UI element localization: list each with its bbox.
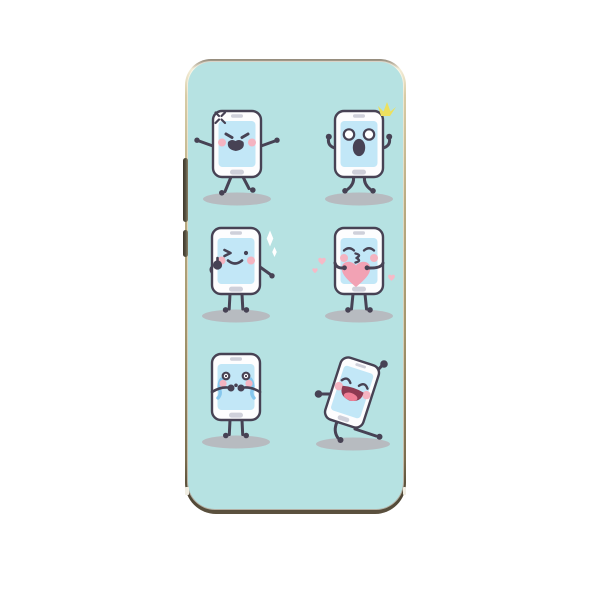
kiss-mouth bbox=[356, 253, 360, 262]
antenna-line-left bbox=[185, 487, 189, 495]
case-power-button bbox=[183, 230, 188, 257]
flash-sparkle-icon bbox=[378, 102, 396, 116]
legs bbox=[348, 177, 371, 190]
speaker-slit bbox=[231, 114, 243, 117]
case-volume-button bbox=[183, 158, 188, 222]
speaker-slit bbox=[353, 114, 365, 117]
antenna-line-right bbox=[403, 487, 407, 495]
ground-shadow bbox=[325, 309, 393, 322]
dot-eye bbox=[244, 250, 248, 254]
legs bbox=[229, 420, 242, 435]
phone-character-kiss bbox=[297, 210, 403, 334]
phone-case bbox=[185, 59, 406, 514]
home-button bbox=[229, 412, 243, 417]
ground-shadow bbox=[202, 435, 270, 448]
home-button bbox=[230, 169, 244, 174]
ground-shadow bbox=[202, 309, 270, 322]
ground-shadow bbox=[203, 192, 271, 205]
ground-shadow bbox=[325, 192, 393, 205]
hand bbox=[269, 273, 274, 278]
phone-character-crying bbox=[188, 336, 298, 460]
small-mouth bbox=[234, 383, 238, 387]
case-back-panel bbox=[188, 62, 403, 510]
home-button bbox=[352, 169, 366, 174]
phone-character-surprised bbox=[297, 93, 403, 217]
home-button bbox=[229, 286, 243, 291]
home-button bbox=[352, 286, 366, 291]
surprised-mouth bbox=[353, 138, 365, 155]
speaker-slit bbox=[230, 231, 242, 234]
legs bbox=[229, 294, 243, 309]
phone-character-dancing bbox=[293, 334, 403, 458]
phone-character-angry bbox=[188, 93, 299, 217]
legs bbox=[352, 294, 367, 309]
diamond-sparkle-icon bbox=[267, 230, 277, 257]
phone-character-wink bbox=[188, 210, 298, 334]
speaker-slit bbox=[353, 231, 365, 234]
speaker-slit bbox=[230, 357, 242, 360]
product-photo-canvas bbox=[0, 0, 600, 600]
tilted-phone-body-group bbox=[323, 355, 381, 429]
legs bbox=[225, 177, 249, 192]
